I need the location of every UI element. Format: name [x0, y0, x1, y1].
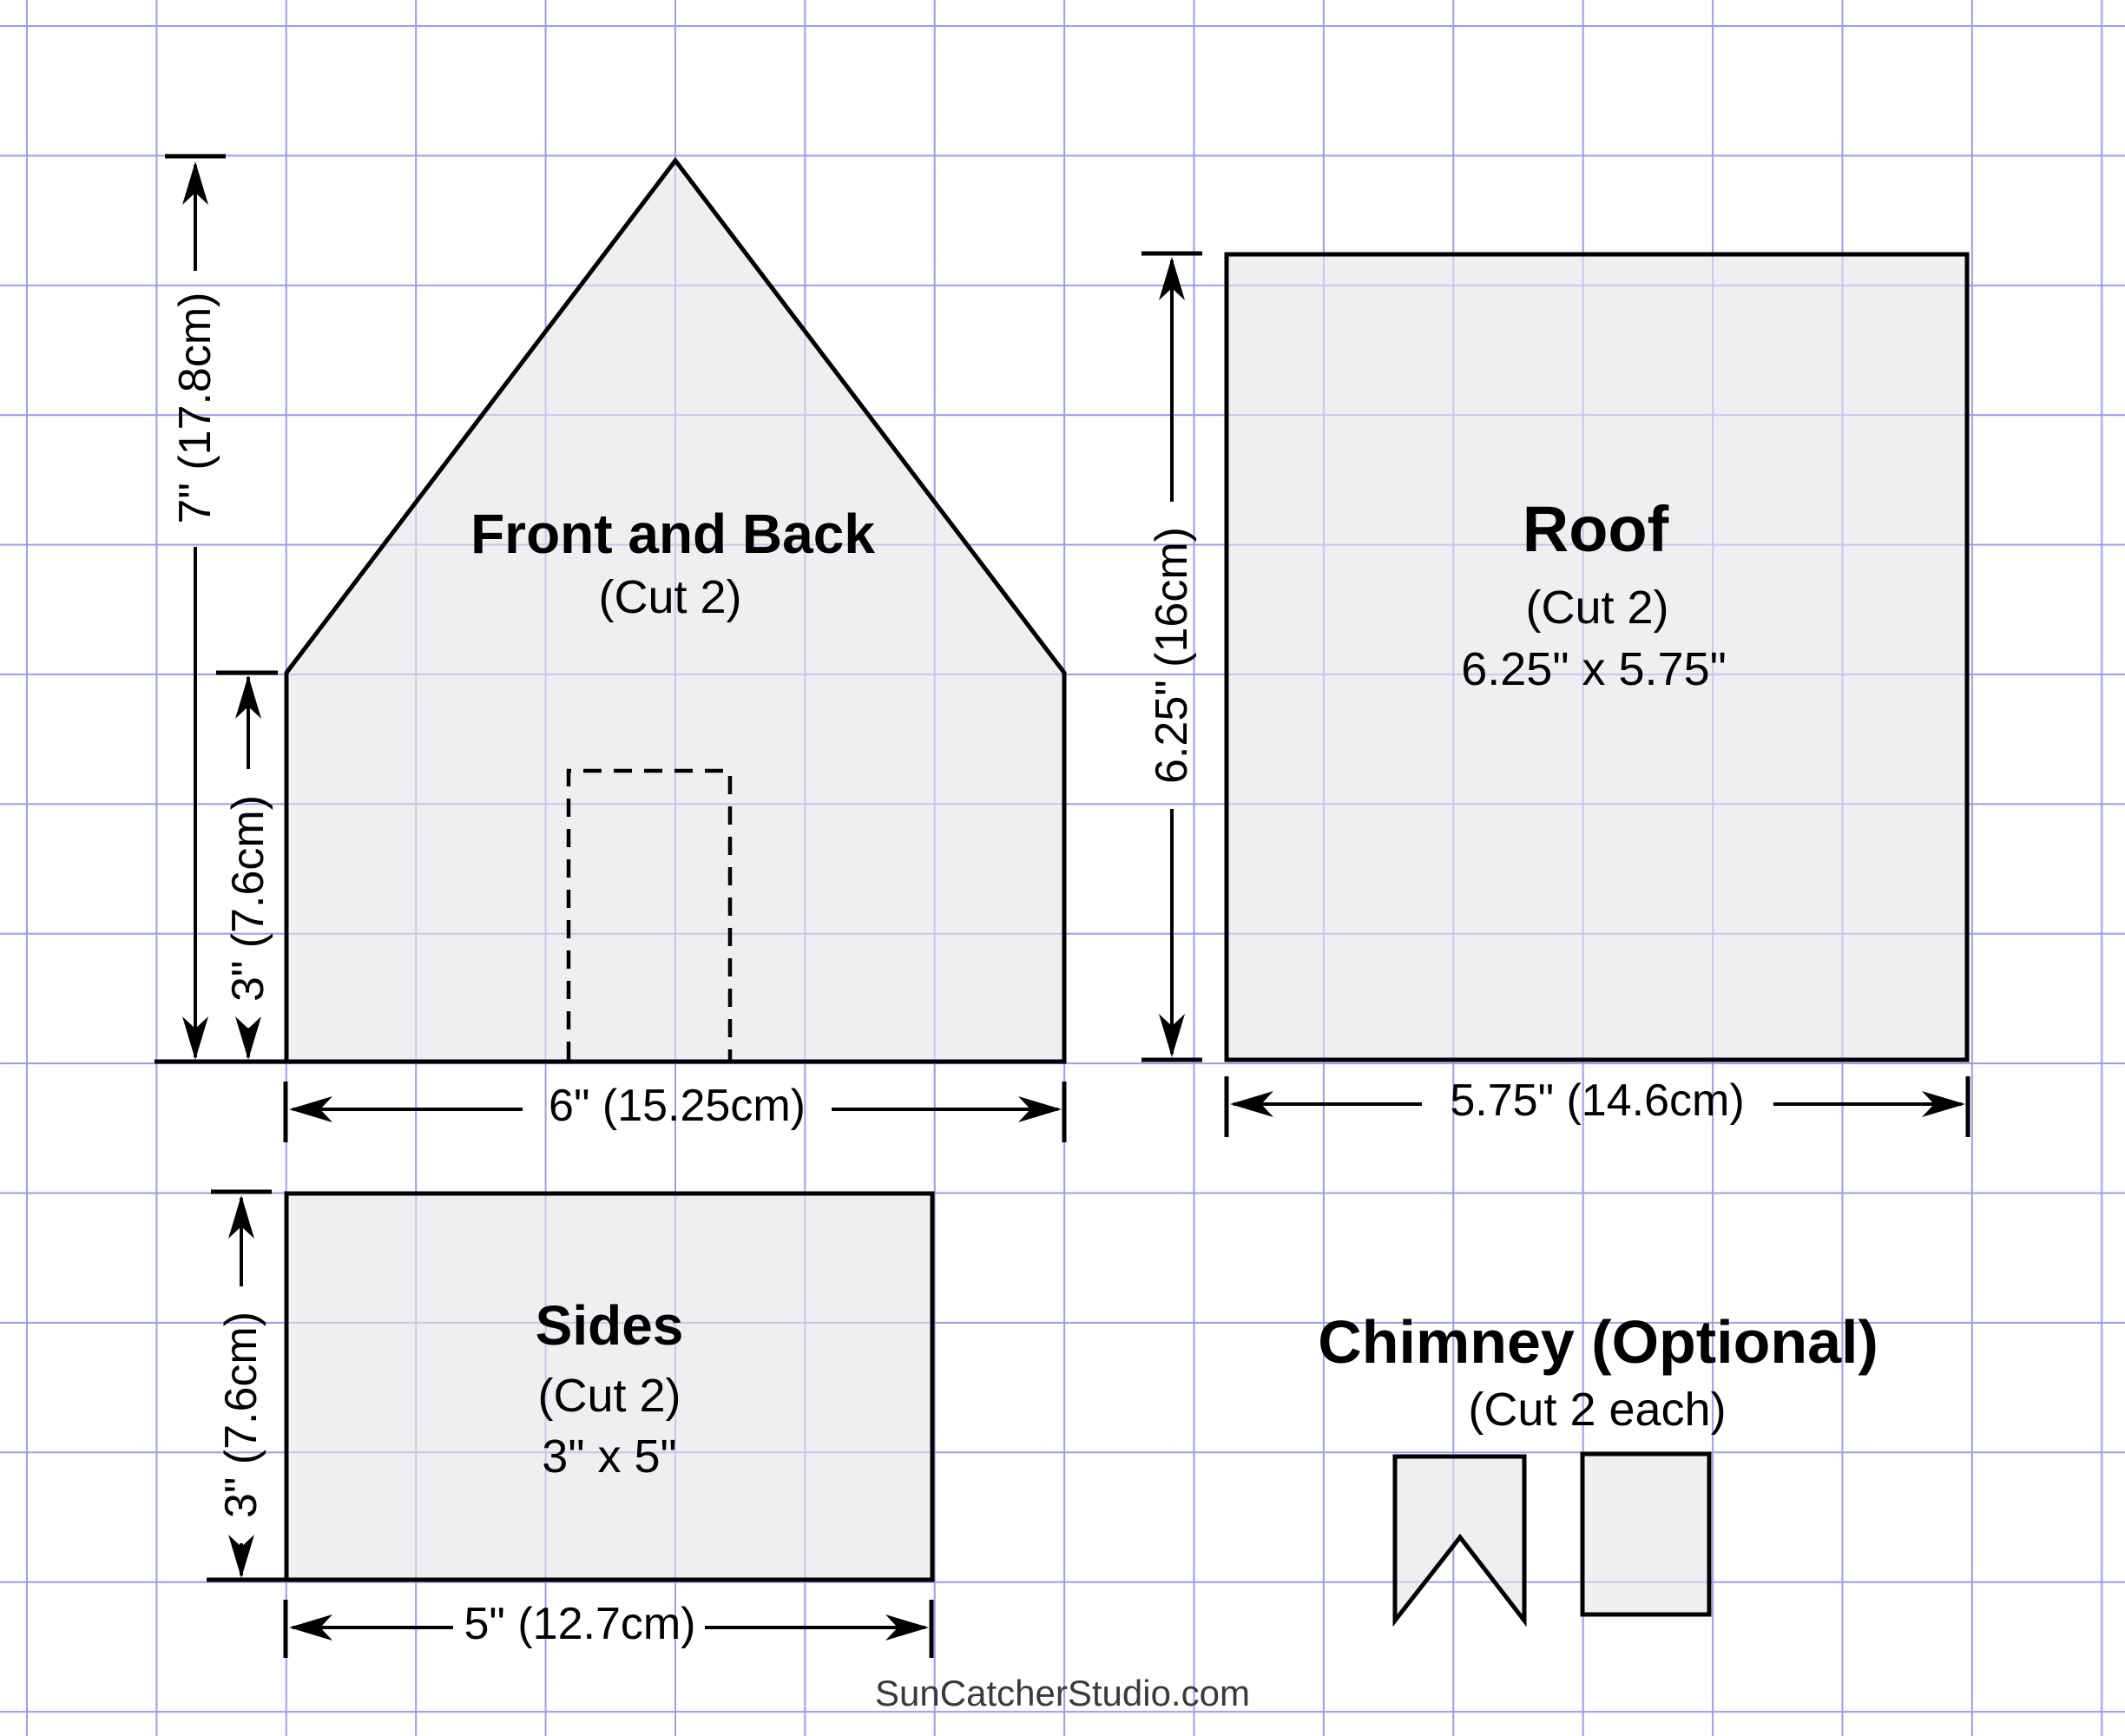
roof-size-label: 6.25" x 5.75": [1461, 646, 1727, 693]
chimney-title: Chimney (Optional): [1318, 1312, 1878, 1372]
sides-size-label: 3" x 5": [542, 1433, 676, 1480]
watermark: SunCatcherStudio.com: [875, 1675, 1250, 1712]
roof-width-dim-label: 5.75" (14.6cm): [1450, 1078, 1744, 1123]
pattern-shapes-layer: [0, 0, 2125, 1736]
sides-width-dim-label: 5" (12.7cm): [464, 1601, 696, 1647]
house-width-dim-label: 6" (15.25cm): [549, 1083, 806, 1128]
roof-cut-label: (Cut 2): [1525, 584, 1668, 631]
front-back-title: Front and Back: [470, 506, 875, 562]
house-wall-dim-label: 3" (7.6cm): [226, 795, 271, 1002]
chimney-cut-label: (Cut 2 each): [1468, 1386, 1726, 1433]
front-back-cut-label: (Cut 2): [598, 574, 741, 621]
pattern-sheet: Front and Back (Cut 2) Roof (Cut 2) 6.25…: [0, 0, 2125, 1736]
house-height-dim-label: 7" (17.8cm): [173, 293, 218, 524]
sides-height-dim-label: 3" (7.6cm): [219, 1312, 264, 1518]
sides-title: Sides: [536, 1298, 684, 1353]
chimney-notched-piece-outline: [1395, 1457, 1524, 1621]
house-wall-arrow-down: [235, 1016, 261, 1060]
sides-cut-label: (Cut 2): [537, 1372, 681, 1419]
chimney-rect-piece-outline: [1582, 1454, 1709, 1614]
sides-height-arrow-down: [228, 1535, 254, 1578]
roof-title: Roof: [1523, 497, 1669, 562]
roof-height-dim-label: 6.25" (16cm): [1149, 527, 1194, 784]
